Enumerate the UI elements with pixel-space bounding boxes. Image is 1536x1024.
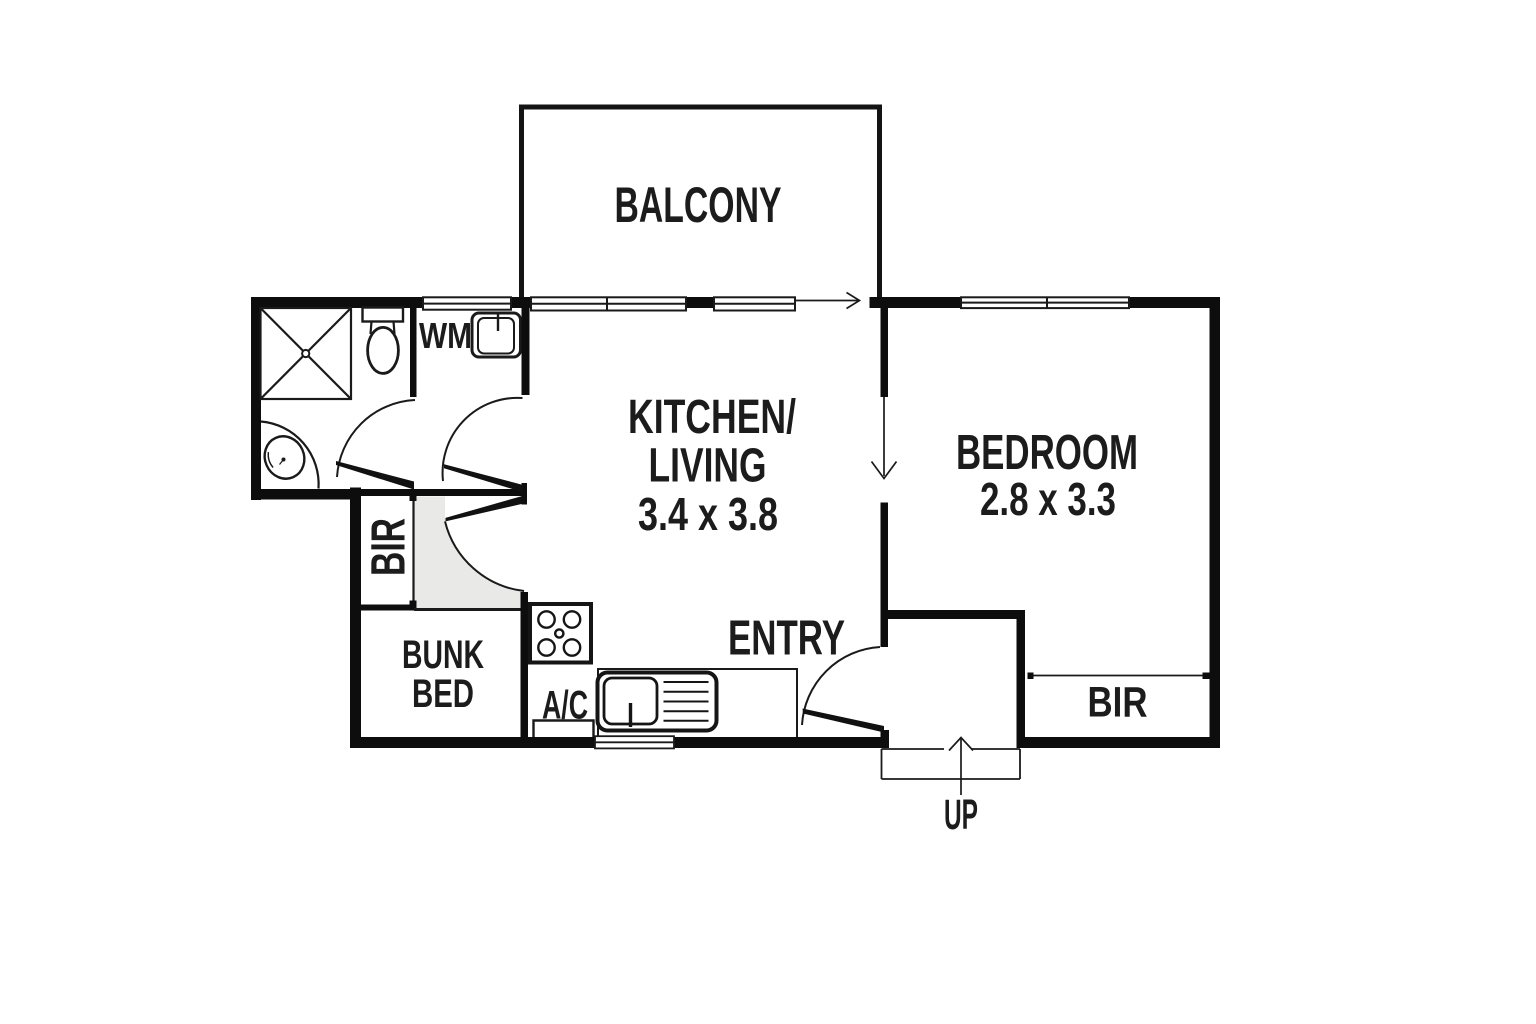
svg-text:BIR: BIR — [1088, 679, 1148, 727]
svg-text:WM: WM — [419, 315, 472, 356]
svg-text:BED: BED — [412, 672, 474, 716]
svg-text:UP: UP — [944, 791, 978, 839]
svg-text:3.4 x 3.8: 3.4 x 3.8 — [638, 488, 778, 540]
svg-text:2.8 x 3.3: 2.8 x 3.3 — [980, 473, 1116, 525]
svg-text:BUNK: BUNK — [402, 633, 484, 677]
svg-text:BALCONY: BALCONY — [615, 177, 782, 233]
svg-text:BEDROOM: BEDROOM — [956, 426, 1138, 480]
svg-text:BIR: BIR — [363, 518, 416, 576]
svg-text:LIVING: LIVING — [649, 440, 767, 493]
svg-text:KITCHEN/: KITCHEN/ — [628, 391, 796, 444]
svg-text:ENTRY: ENTRY — [728, 612, 845, 666]
